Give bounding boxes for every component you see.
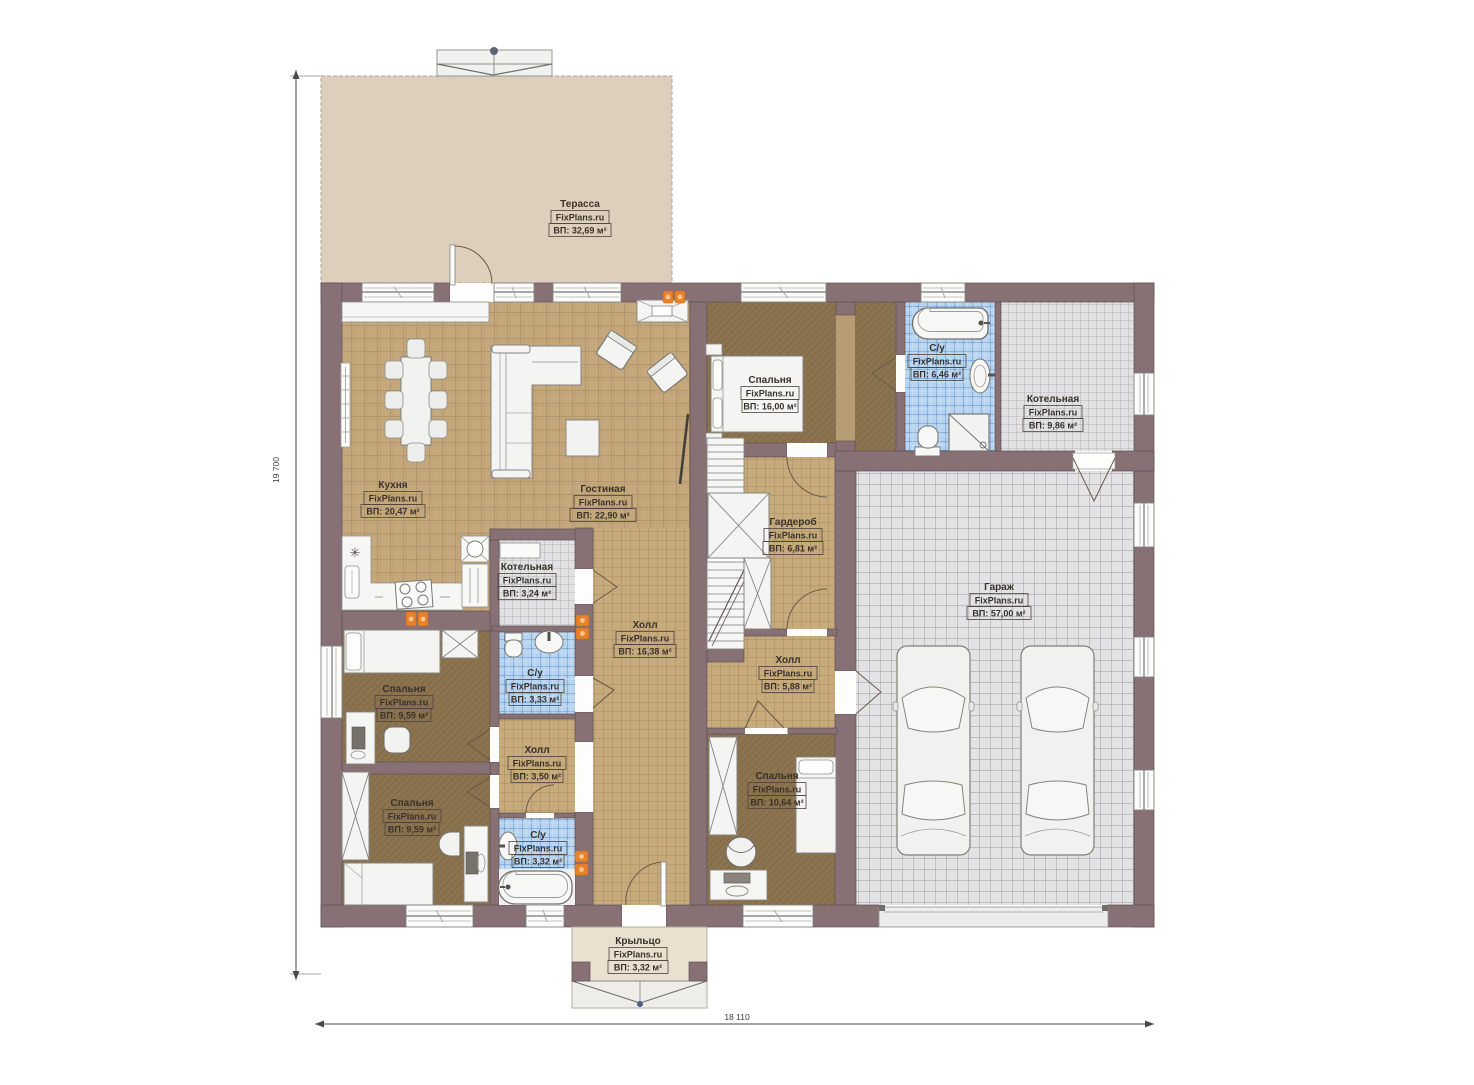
svg-text:FixPlans.ru: FixPlans.ru — [913, 356, 962, 366]
svg-text:Крыльцо: Крыльцо — [615, 936, 661, 947]
svg-text:FixPlans.ru: FixPlans.ru — [764, 668, 813, 678]
svg-text:FixPlans.ru: FixPlans.ru — [579, 497, 628, 507]
svg-text:ВП: 22,90 м²: ВП: 22,90 м² — [576, 510, 629, 520]
svg-text:Кухня: Кухня — [378, 480, 407, 491]
svg-text:FixPlans.ru: FixPlans.ru — [380, 697, 429, 707]
svg-text:FixPlans.ru: FixPlans.ru — [975, 595, 1024, 605]
svg-text:FixPlans.ru: FixPlans.ru — [513, 758, 562, 768]
svg-text:Холл: Холл — [632, 620, 657, 631]
svg-text:Спальня: Спальня — [755, 771, 798, 782]
svg-text:Котельная: Котельная — [501, 562, 554, 573]
svg-text:ВП: 32,69 м²: ВП: 32,69 м² — [553, 225, 606, 235]
svg-text:Холл: Холл — [524, 745, 549, 756]
svg-text:ВП: 3,33 м²: ВП: 3,33 м² — [511, 694, 559, 704]
svg-text:FixPlans.ru: FixPlans.ru — [1029, 407, 1078, 417]
svg-text:ВП: 9,59 м²: ВП: 9,59 м² — [388, 824, 436, 834]
svg-text:Холл: Холл — [775, 655, 800, 666]
svg-text:FixPlans.ru: FixPlans.ru — [614, 949, 663, 959]
svg-text:Спальня: Спальня — [748, 375, 791, 386]
svg-text:ВП: 3,32 м²: ВП: 3,32 м² — [514, 856, 562, 866]
svg-text:FixPlans.ru: FixPlans.ru — [511, 681, 560, 691]
svg-text:ВП: 6,46 м²: ВП: 6,46 м² — [913, 369, 961, 379]
svg-text:ВП: 3,24 м²: ВП: 3,24 м² — [503, 588, 551, 598]
svg-text:ВП: 3,32 м²: ВП: 3,32 м² — [614, 962, 662, 972]
svg-text:ВП: 6,81 м²: ВП: 6,81 м² — [769, 543, 817, 553]
svg-text:ВП: 9,59 м²: ВП: 9,59 м² — [380, 710, 428, 720]
svg-text:FixPlans.ru: FixPlans.ru — [388, 811, 437, 821]
svg-text:Гараж: Гараж — [984, 582, 1015, 593]
svg-text:ВП: 9,86 м²: ВП: 9,86 м² — [1029, 420, 1077, 430]
svg-text:FixPlans.ru: FixPlans.ru — [746, 388, 795, 398]
svg-text:С/у: С/у — [527, 668, 543, 679]
svg-text:С/у: С/у — [530, 830, 546, 841]
svg-text:ВП: 57,00 м²: ВП: 57,00 м² — [972, 608, 1025, 618]
svg-text:ВП: 20,47 м²: ВП: 20,47 м² — [366, 506, 419, 516]
svg-text:FixPlans.ru: FixPlans.ru — [753, 784, 802, 794]
svg-text:ВП: 16,00 м²: ВП: 16,00 м² — [743, 401, 796, 411]
svg-text:ВП: 5,88 м²: ВП: 5,88 м² — [764, 681, 812, 691]
svg-text:FixPlans.ru: FixPlans.ru — [556, 212, 605, 222]
svg-text:Спальня: Спальня — [382, 684, 425, 695]
svg-text:ВП: 10,64 м²: ВП: 10,64 м² — [750, 797, 803, 807]
svg-text:FixPlans.ru: FixPlans.ru — [621, 633, 670, 643]
svg-text:Котельная: Котельная — [1027, 394, 1080, 405]
svg-text:Гостиная: Гостиная — [580, 484, 625, 495]
svg-text:19 700: 19 700 — [271, 457, 281, 483]
svg-text:FixPlans.ru: FixPlans.ru — [769, 530, 818, 540]
svg-text:ВП: 16,38 м²: ВП: 16,38 м² — [618, 646, 671, 656]
svg-text:Спальня: Спальня — [390, 798, 433, 809]
svg-text:С/у: С/у — [929, 343, 945, 354]
svg-text:FixPlans.ru: FixPlans.ru — [369, 493, 418, 503]
svg-text:Гардероб: Гардероб — [769, 516, 816, 528]
svg-text:✳: ✳ — [350, 545, 361, 560]
svg-text:FixPlans.ru: FixPlans.ru — [514, 843, 563, 853]
svg-text:18 110: 18 110 — [724, 1012, 750, 1022]
svg-text:FixPlans.ru: FixPlans.ru — [503, 575, 552, 585]
svg-text:ВП: 3,50 м²: ВП: 3,50 м² — [513, 771, 561, 781]
svg-text:Терасса: Терасса — [560, 199, 600, 210]
